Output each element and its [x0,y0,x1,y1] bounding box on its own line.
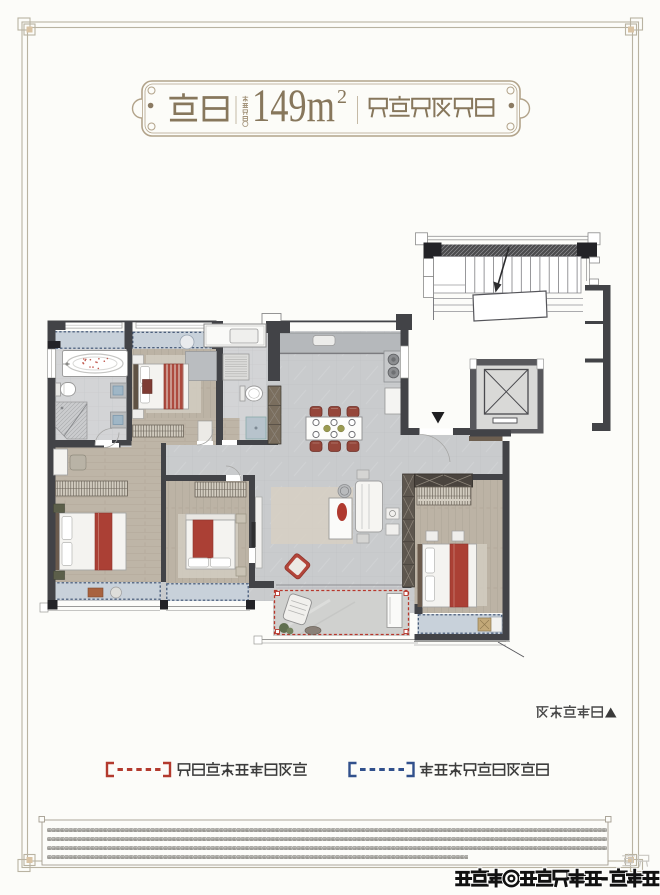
svg-text:2: 2 [337,86,347,108]
svg-text:149m: 149m [252,80,335,132]
